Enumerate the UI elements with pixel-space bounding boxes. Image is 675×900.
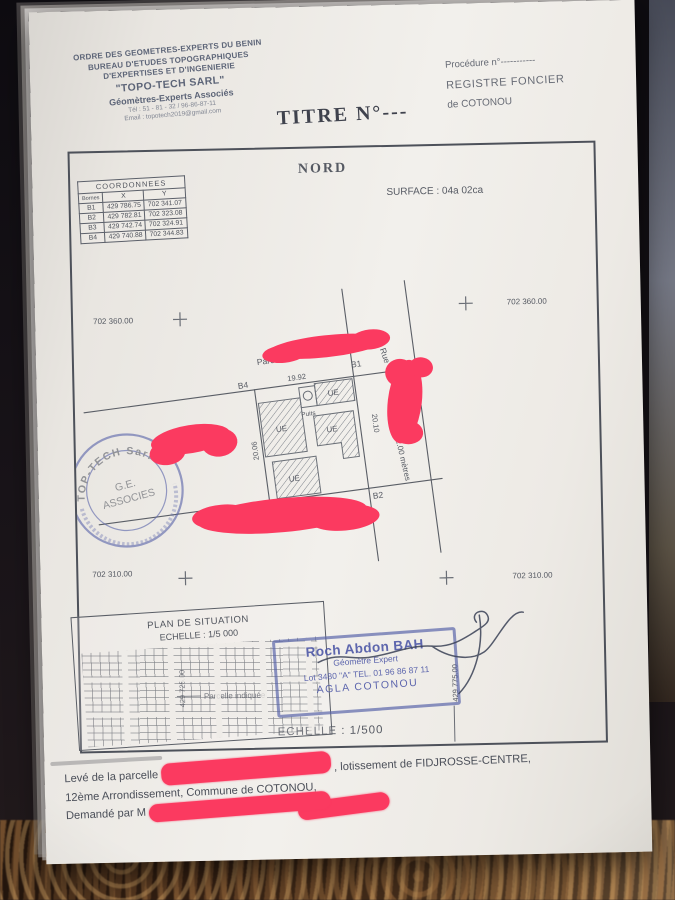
building-label: UE [288, 474, 300, 484]
plan-frame: NORD SURFACE : 04a 02ca 702 360.00 702 3… [67, 141, 607, 754]
borne-id: B4 [80, 232, 105, 243]
redaction-parcel-name [160, 751, 331, 786]
coordinates-table: COORDONNEES Bornes X Y B1 429 786.75 702… [77, 175, 188, 244]
well-icon [303, 391, 313, 401]
coord-x: 429 740.88 [105, 230, 147, 242]
north-label: NORD [298, 161, 348, 177]
redaction-parcel-top [261, 327, 392, 365]
surveyor-stamp: Roch Abdon BAH Géomètre Expert Lot 3480 … [272, 627, 461, 718]
grid-line-segment [454, 706, 455, 742]
dimension-left: 20.06 [249, 441, 260, 461]
document-title: TITRE N°--- [276, 100, 409, 130]
redaction-left [146, 418, 240, 468]
corner-b1: B1 [350, 358, 362, 369]
registry-block: Procédure n°----------- REGISTRE FONCIER… [445, 49, 567, 116]
dimension-right: 20.10 [370, 413, 381, 433]
grid-label-bottom-right: 702 310.00 [512, 571, 553, 581]
footer-line1-start: Levé de la parcelle [64, 769, 158, 785]
street-name-label: Rue [378, 347, 393, 365]
grid-label-top-right: 702 360.00 [507, 297, 548, 307]
building-label: UE [327, 388, 339, 398]
footer-line1-end: , lotissement de FIDJROSSE-CENTRE, [334, 753, 531, 774]
redaction-street [377, 353, 434, 446]
building-footprints [257, 379, 367, 500]
footer-caption: Levé de la parcelle, lotissement de FIDJ… [64, 742, 632, 824]
surface-label: SURFACE : 04a 02ca [386, 185, 483, 198]
grid-label-top-left: 702 360.00 [93, 316, 134, 326]
well-enclosure [299, 386, 318, 408]
building-label: UE [275, 424, 287, 434]
dimension-top: 19.92 [287, 372, 307, 383]
background-wall [649, 0, 675, 702]
survey-document-sheet: ORDRE DES GEOMETRES-EXPERTS DU BENIN BUR… [29, 0, 653, 864]
corner-b4: B4 [237, 380, 249, 391]
grid-label-bottom-left: 702 310.00 [92, 569, 133, 579]
corner-b2: B2 [372, 489, 384, 500]
building-label: UE [326, 424, 338, 434]
footer-line3-start: Demandé par M [66, 807, 147, 822]
letterhead: ORDRE DES GEOMETRES-EXPERTS DU BENIN BUR… [47, 36, 292, 129]
coord-y: 702 344.83 [146, 228, 188, 240]
